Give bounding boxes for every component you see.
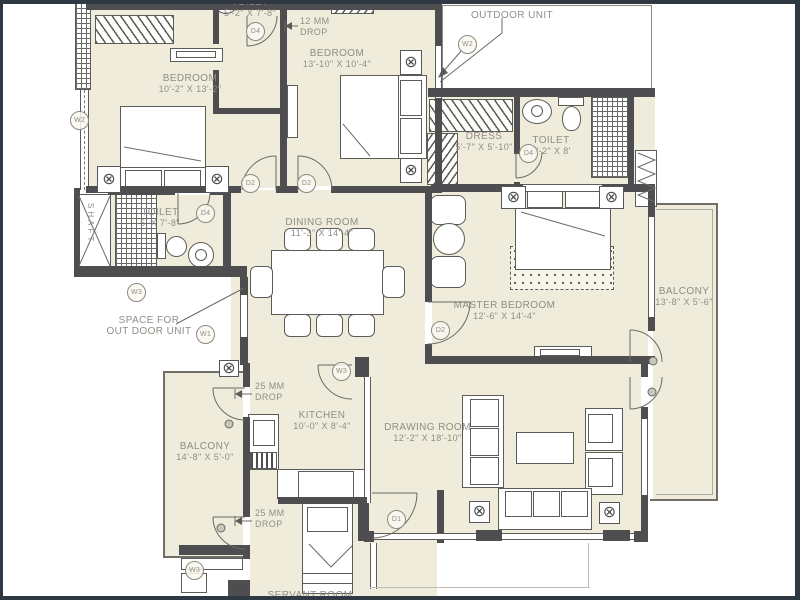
note-line: DROP — [255, 392, 301, 403]
label-drawing-room: DRAWING ROOM 12'-2" X 18'-10" — [375, 422, 480, 444]
window-dining-west — [240, 295, 248, 337]
label-balcony-left: BALCONY 14'-8" X 5'-0" — [167, 441, 243, 463]
marker-door: D4 — [519, 144, 538, 163]
wall — [641, 364, 648, 377]
wc-bowl — [562, 106, 581, 131]
wall — [240, 337, 248, 365]
note-line: SPACE FOR — [103, 315, 195, 326]
kitchen-sink — [253, 420, 275, 446]
label-balcony-right: BALCONY 13'-8" X 5'-6" — [650, 286, 718, 308]
wall — [435, 4, 442, 46]
ceiling-light-icon: ⊗ — [205, 166, 229, 193]
room-name: DINING ROOM — [262, 217, 382, 228]
tv-panel — [287, 85, 298, 138]
frame-right — [795, 0, 800, 600]
marker-door: D4 — [246, 22, 265, 41]
label-25mm-drop: 25 MM DROP — [255, 381, 301, 403]
wall — [74, 266, 247, 277]
label-kitchen: KITCHEN 10'-0" X 8'-4" — [282, 410, 362, 432]
wall — [179, 545, 243, 555]
wall — [641, 407, 648, 419]
sofa-cushion — [505, 491, 532, 517]
room-name: KITCHEN — [282, 410, 362, 421]
frame-left — [0, 0, 3, 600]
ceiling-light-icon: ⊗ — [400, 50, 422, 75]
wc-tank — [157, 233, 166, 259]
pillow — [400, 80, 422, 116]
shaft-label: SHAFT — [86, 203, 95, 244]
wall — [228, 580, 250, 596]
wall — [425, 190, 432, 302]
ceiling-light-icon: ⊗ — [97, 166, 121, 193]
frame-bottom — [0, 596, 800, 600]
armchair — [430, 256, 466, 288]
wall — [243, 545, 250, 559]
wall — [634, 531, 648, 542]
terrace-line — [370, 587, 590, 588]
chair — [382, 266, 405, 298]
room-name: TOILET — [128, 207, 192, 218]
wardrobe-bedroom1 — [95, 15, 174, 44]
round-table — [433, 223, 465, 255]
wall — [364, 531, 374, 542]
floor-plan: SHAFT ⊗ ⊗ ⊗ ⊗ — [0, 0, 800, 600]
marker-window: W2 — [70, 111, 89, 130]
wall — [243, 363, 250, 387]
shower-tiles-toilet3 — [115, 194, 157, 270]
pillow — [307, 507, 348, 532]
label-bedroom1: BEDROOM 10'-2" X 13'-2" — [130, 73, 250, 95]
marker-window: W3 — [127, 283, 146, 302]
note-line: DROP — [300, 27, 350, 38]
door-panel — [355, 357, 369, 377]
wall — [648, 190, 655, 217]
bed — [515, 208, 611, 270]
marker-window: W3 — [332, 362, 351, 381]
sofa-cushion — [561, 491, 588, 517]
dresser-inner — [540, 349, 580, 356]
washbasin-drain — [195, 249, 207, 261]
marker-window: W1 — [196, 325, 215, 344]
label-toilet3: TOILET 5' X 7'-8" — [128, 207, 192, 229]
coffee-table — [516, 432, 574, 464]
wall — [74, 188, 80, 268]
room-name: DRESS — [448, 131, 520, 142]
room-dims: 13'-10" X 10'-4" — [277, 59, 397, 70]
wall — [603, 530, 630, 541]
armchair — [430, 195, 466, 225]
note-line: 25 MM — [255, 508, 301, 519]
room-dims: 5' X 7'-8" — [128, 218, 192, 229]
room-name: BEDROOM — [130, 73, 250, 84]
room-name: BEDROOM — [277, 48, 397, 59]
wc-tank — [558, 97, 584, 106]
room-name: BALCONY — [167, 441, 243, 452]
window-master-north — [523, 184, 602, 192]
note-line: 25 MM — [255, 381, 301, 392]
room-dims: 5'-2" X 7'-8" — [214, 8, 286, 19]
ceiling-light-icon: ⊗ — [219, 360, 239, 377]
floor-toilet1 — [213, 4, 287, 112]
ceiling-light-icon: ⊗ — [599, 186, 624, 209]
marker-window: W3 — [185, 561, 204, 580]
wc-bowl — [166, 236, 187, 257]
armchair-cushion — [588, 458, 613, 487]
note-line: 12 MM — [300, 16, 350, 27]
marker-door: D2 — [297, 174, 316, 193]
sofa-cushion — [470, 457, 499, 485]
window-drawing-east — [641, 419, 648, 495]
bed-line — [302, 583, 353, 584]
chair — [348, 314, 375, 337]
wall — [280, 4, 287, 186]
label-bedroom2: BEDROOM 13'-10" X 10'-4" — [277, 48, 397, 70]
label-25mm-drop: 25 MM DROP — [255, 508, 301, 530]
tv-unit-inner — [176, 51, 216, 58]
marker-door: D1 — [387, 510, 406, 529]
wall — [243, 417, 250, 517]
wall — [276, 186, 298, 193]
marker-door: D4 — [196, 204, 215, 223]
note-line: OUT DOOR UNIT — [103, 326, 195, 337]
frame-top — [0, 0, 800, 4]
room-dims: 13'-8" X 5'-6" — [650, 297, 718, 308]
note-line: DROP — [255, 519, 301, 530]
ceiling-light-icon: ⊗ — [501, 186, 526, 209]
marker-window: W2 — [458, 35, 477, 54]
window-dashed-line — [84, 90, 85, 190]
room-dims: 5'-7" X 5'-10" — [448, 142, 520, 153]
kitchen-platform — [250, 452, 277, 469]
window-drawing-south — [368, 533, 641, 540]
room-name: MASTER BEDROOM — [432, 300, 577, 311]
pillow — [400, 118, 422, 154]
label-12mm-drop: 12 MM DROP — [300, 16, 350, 38]
room-dims: 11'-3" X 14'-4" — [262, 228, 382, 239]
armchair-cushion — [588, 414, 613, 443]
label-dining: DINING ROOM 11'-3" X 14'-4" — [262, 217, 382, 239]
terrace-line — [588, 543, 589, 588]
wall-checkered-column — [75, 3, 91, 90]
balcony-left-railing — [163, 371, 244, 558]
room-dims: 14'-8" X 5'-0" — [167, 452, 243, 463]
chair — [316, 314, 343, 337]
room-dims: 10'-2" X 13'-2" — [130, 84, 250, 95]
wall-kitchen-divider — [364, 377, 371, 503]
washbasin-drain — [531, 105, 543, 117]
balcony-right-inner-line — [656, 209, 713, 495]
ceiling-light-icon: ⊗ — [400, 158, 422, 183]
wall — [213, 108, 287, 114]
wall — [648, 317, 655, 331]
wall — [428, 88, 655, 97]
room-dims: 12'-6" X 14'-4" — [432, 311, 577, 322]
bed-line — [398, 76, 399, 158]
room-dims: 12'-2" X 18'-10" — [375, 433, 480, 444]
label-dress: DRESS 5'-7" X 5'-10" — [448, 131, 520, 153]
marker-door: D2 — [431, 321, 450, 340]
wall — [425, 356, 655, 364]
stove — [298, 471, 354, 498]
room-name: OUTDOOR UNIT — [452, 10, 572, 21]
wall — [476, 530, 502, 541]
label-space-outdoor-unit: SPACE FOR OUT DOOR UNIT — [103, 315, 195, 337]
wall — [240, 277, 248, 295]
bed-line — [120, 167, 206, 168]
bed-line — [302, 573, 353, 574]
label-outdoor-unit: OUTDOOR UNIT — [452, 10, 572, 21]
wall — [435, 98, 442, 190]
chair — [250, 266, 273, 298]
dining-table — [271, 250, 384, 315]
ceiling-light-icon: ⊗ — [469, 501, 490, 523]
tiles-toilet2 — [591, 97, 628, 178]
wall — [278, 497, 367, 504]
room-name: DRAWING ROOM — [375, 422, 480, 433]
terrace-line — [370, 543, 377, 589]
sofa-cushion — [533, 491, 560, 517]
wall — [628, 95, 634, 192]
label-master-bedroom: MASTER BEDROOM 12'-6" X 14'-4" — [432, 300, 577, 322]
marker-door: D2 — [241, 174, 260, 193]
room-name: BALCONY — [650, 286, 718, 297]
ceiling-light-icon: ⊗ — [599, 502, 620, 524]
wall — [223, 190, 231, 268]
chair — [284, 314, 311, 337]
room-dims: 10'-0" X 8'-4" — [282, 421, 362, 432]
